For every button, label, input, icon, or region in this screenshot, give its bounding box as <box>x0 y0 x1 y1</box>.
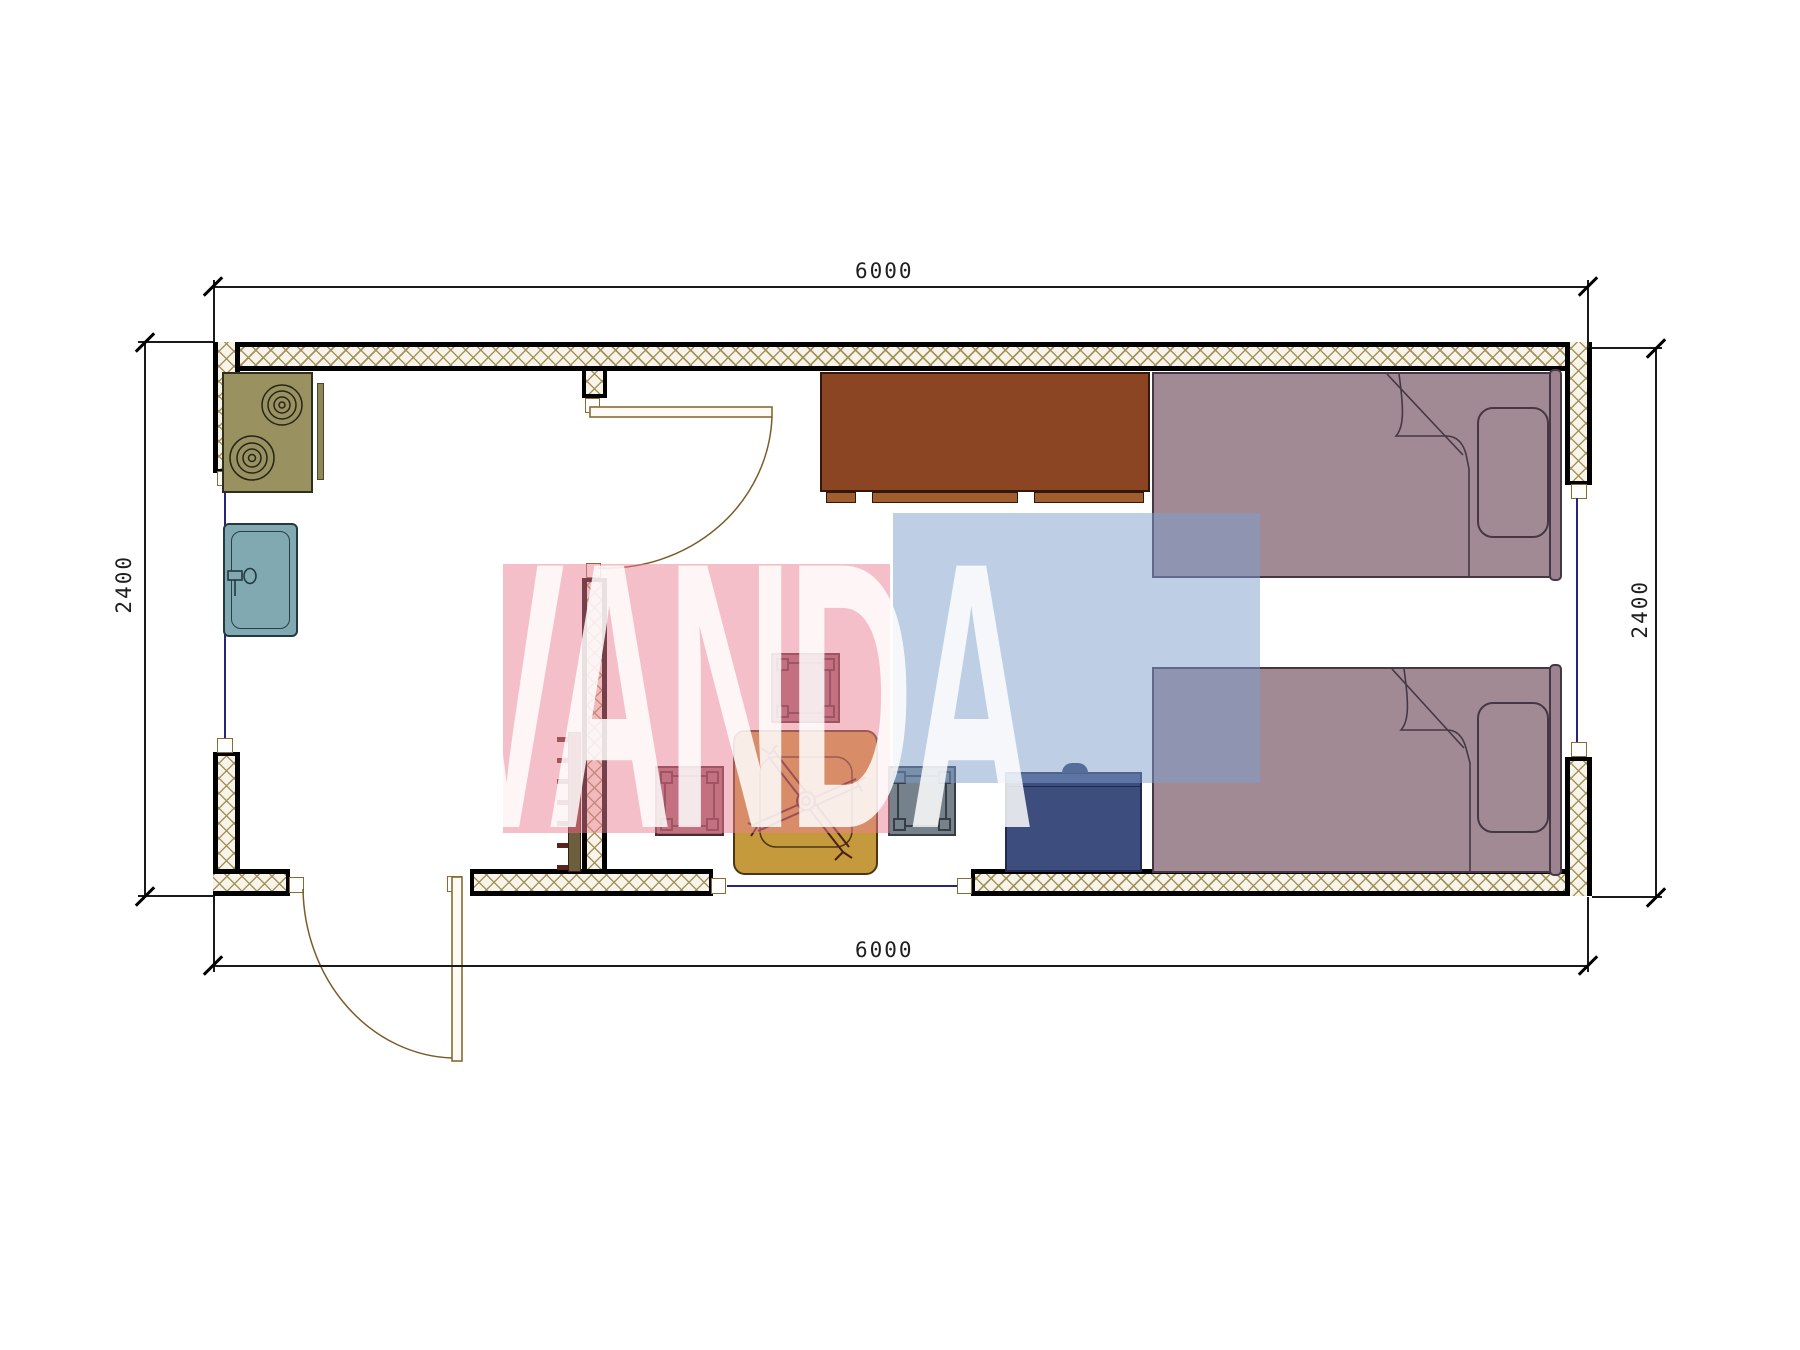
dim-line-bottom <box>213 965 1588 967</box>
dim-label-top: 6000 <box>855 259 914 283</box>
faucet-icon <box>228 569 256 597</box>
dim-label-left: 2400 <box>112 555 136 614</box>
burner-icon <box>230 385 302 480</box>
blanket-fold <box>1387 374 1470 871</box>
dim-line-right <box>1655 348 1657 897</box>
ext-line <box>1592 896 1662 898</box>
ext-line <box>138 895 213 897</box>
ext-line <box>213 280 215 342</box>
dim-line-left <box>144 342 146 896</box>
floor-plan: 6000 6000 2400 2400 VANDA <box>0 0 1800 1350</box>
watermark-text: VANDA <box>448 552 1029 841</box>
ext-line <box>1592 347 1662 349</box>
dim-line-top <box>213 286 1588 288</box>
exterior-door <box>303 877 462 1061</box>
dim-label-right: 2400 <box>1628 580 1652 639</box>
ext-line <box>1587 280 1589 348</box>
dim-label-bottom: 6000 <box>855 938 914 962</box>
ext-line <box>138 341 213 343</box>
